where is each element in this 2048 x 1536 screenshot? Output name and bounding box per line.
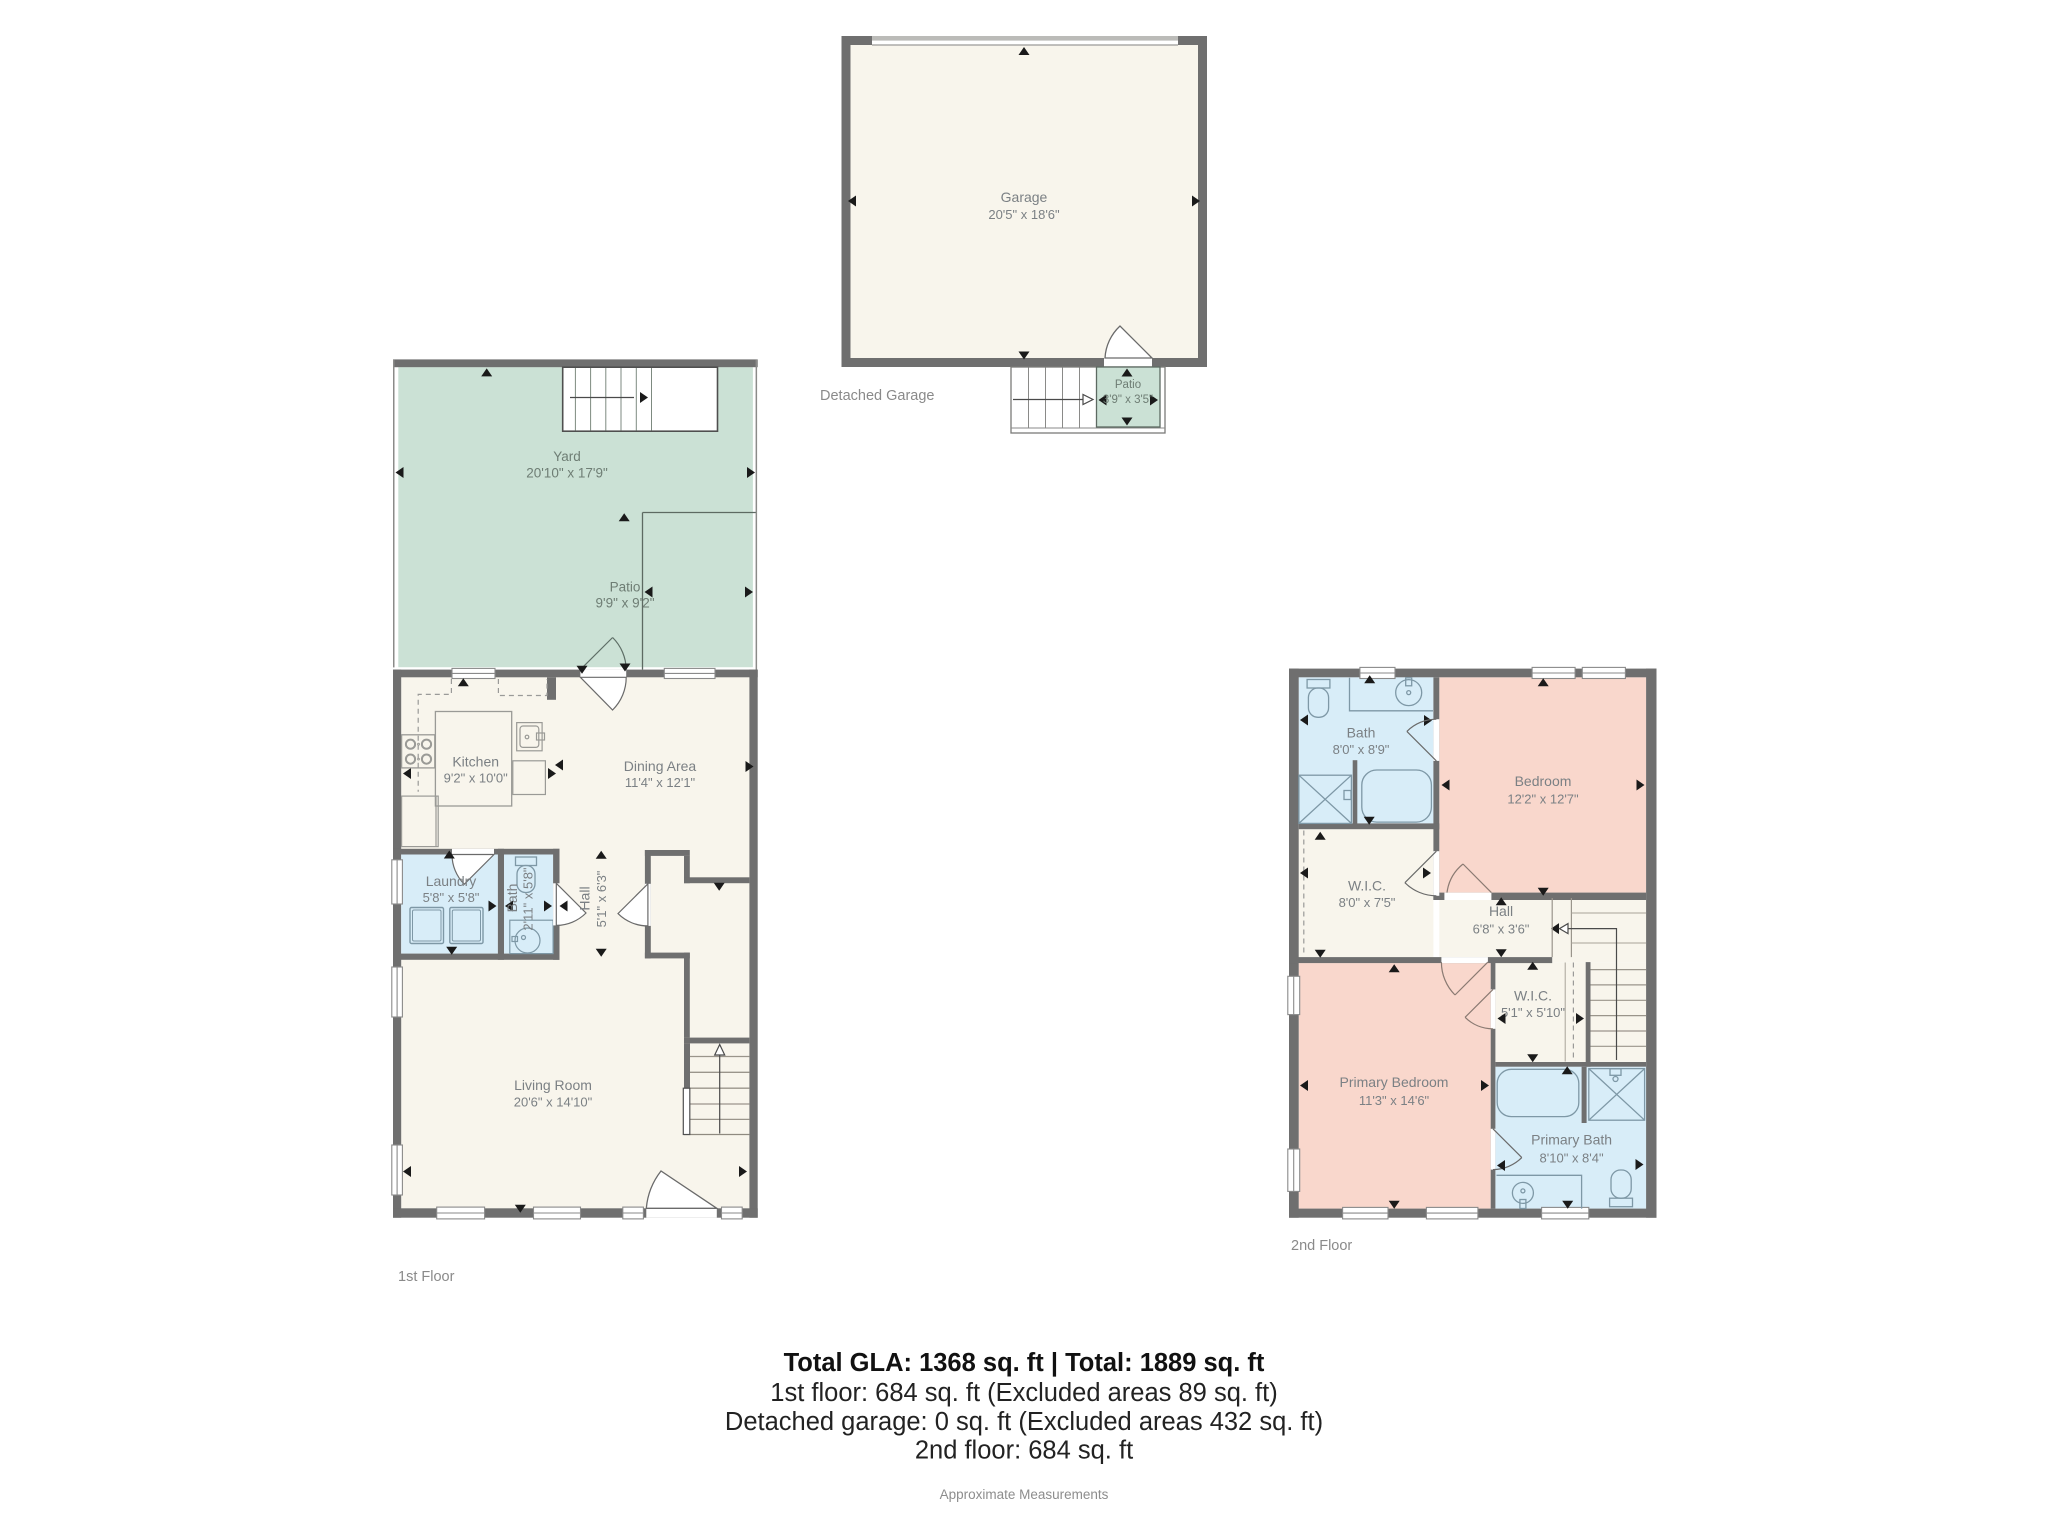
svg-text:2nd floor: 684 sq. ft: 2nd floor: 684 sq. ft: [915, 1437, 1133, 1465]
svg-text:6'8" x 3'6": 6'8" x 3'6": [1473, 922, 1530, 937]
svg-text:9'9" x 9'2": 9'9" x 9'2": [595, 596, 654, 611]
svg-text:2nd Floor: 2nd Floor: [1291, 1238, 1352, 1254]
svg-text:Total GLA: 1368 sq. ft | Total: Total GLA: 1368 sq. ft | Total: 1889 sq.…: [784, 1349, 1265, 1377]
svg-text:5'1" x 5'10": 5'1" x 5'10": [1501, 1005, 1565, 1020]
svg-text:20'5" x 18'6": 20'5" x 18'6": [988, 207, 1060, 222]
svg-text:Yard: Yard: [553, 449, 581, 464]
svg-text:Patio: Patio: [610, 580, 641, 595]
svg-text:1st Floor: 1st Floor: [398, 1269, 455, 1285]
svg-text:Laundry: Laundry: [426, 873, 477, 889]
svg-text:Patio: Patio: [1115, 379, 1141, 391]
svg-text:5'1" x 6'3": 5'1" x 6'3": [594, 870, 609, 927]
svg-text:Primary Bath: Primary Bath: [1531, 1132, 1612, 1148]
svg-text:W.I.C.: W.I.C.: [1348, 878, 1386, 894]
svg-text:12'2" x 12'7": 12'2" x 12'7": [1507, 792, 1579, 807]
svg-text:Detached Garage: Detached Garage: [820, 388, 934, 404]
svg-text:Hall: Hall: [577, 886, 593, 910]
svg-text:Hall: Hall: [1489, 903, 1513, 919]
svg-text:Detached garage: 0 sq. ft (Exc: Detached garage: 0 sq. ft (Excluded area…: [725, 1408, 1323, 1436]
svg-text:2'11" x 5'8": 2'11" x 5'8": [521, 867, 536, 930]
svg-text:5'8" x 5'8": 5'8" x 5'8": [423, 890, 480, 905]
svg-text:Dining Area: Dining Area: [624, 758, 697, 774]
svg-text:Garage: Garage: [1001, 189, 1048, 205]
svg-text:9'2" x 10'0": 9'2" x 10'0": [444, 771, 508, 786]
svg-text:W.I.C.: W.I.C.: [1514, 988, 1552, 1004]
svg-text:1st floor: 684 sq. ft (Exclude: 1st floor: 684 sq. ft (Excluded areas 89…: [770, 1379, 1277, 1407]
svg-text:Primary Bedroom: Primary Bedroom: [1340, 1074, 1449, 1090]
svg-text:Kitchen: Kitchen: [452, 754, 499, 770]
svg-text:11'3" x 14'6": 11'3" x 14'6": [1359, 1093, 1430, 1108]
svg-text:8'0" x 8'9": 8'0" x 8'9": [1333, 742, 1390, 757]
svg-text:Bedroom: Bedroom: [1515, 773, 1572, 789]
svg-text:20'6" x 14'10": 20'6" x 14'10": [514, 1095, 593, 1110]
svg-text:20'10" x 17'9": 20'10" x 17'9": [526, 466, 608, 481]
svg-text:8'10" x 8'4": 8'10" x 8'4": [1540, 1151, 1604, 1166]
svg-text:8'0" x 7'5": 8'0" x 7'5": [1339, 895, 1396, 910]
svg-text:11'4" x 12'1": 11'4" x 12'1": [625, 775, 696, 790]
svg-text:Bath: Bath: [1347, 725, 1376, 741]
svg-text:3'9" x 3'5": 3'9" x 3'5": [1103, 394, 1153, 406]
svg-text:Bath: Bath: [504, 884, 520, 913]
svg-text:Approximate Measurements: Approximate Measurements: [940, 1487, 1109, 1502]
svg-text:Living Room: Living Room: [514, 1077, 592, 1093]
